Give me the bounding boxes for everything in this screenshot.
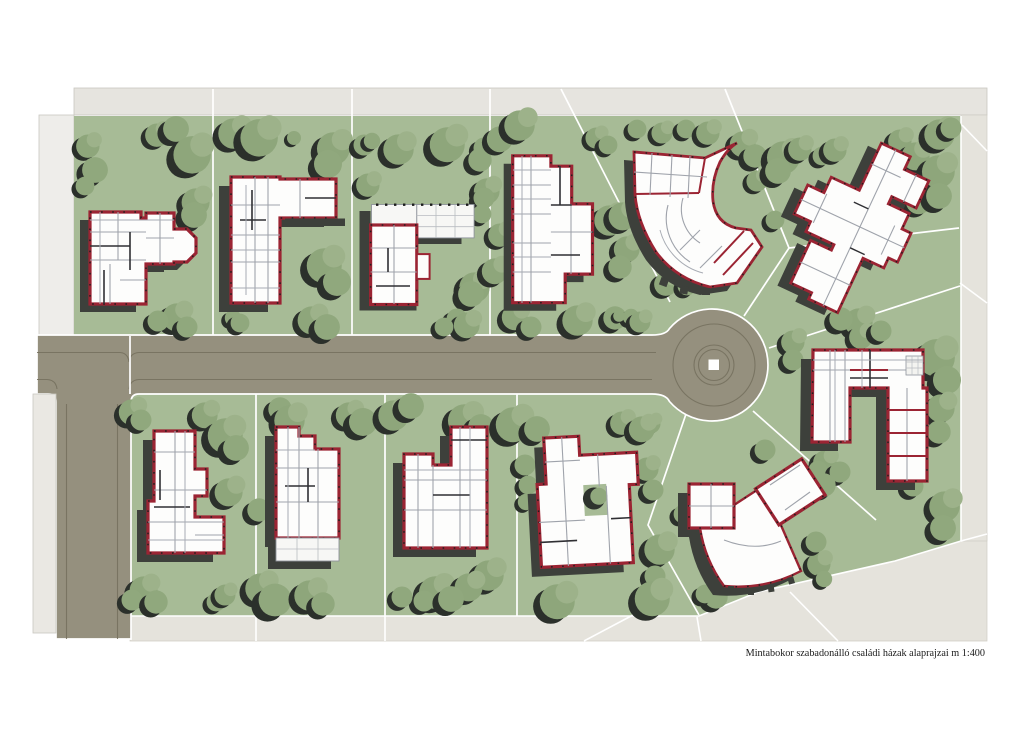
- svg-text:Mintabokor szabadonálló család: Mintabokor szabadonálló családi házak al…: [746, 648, 985, 659]
